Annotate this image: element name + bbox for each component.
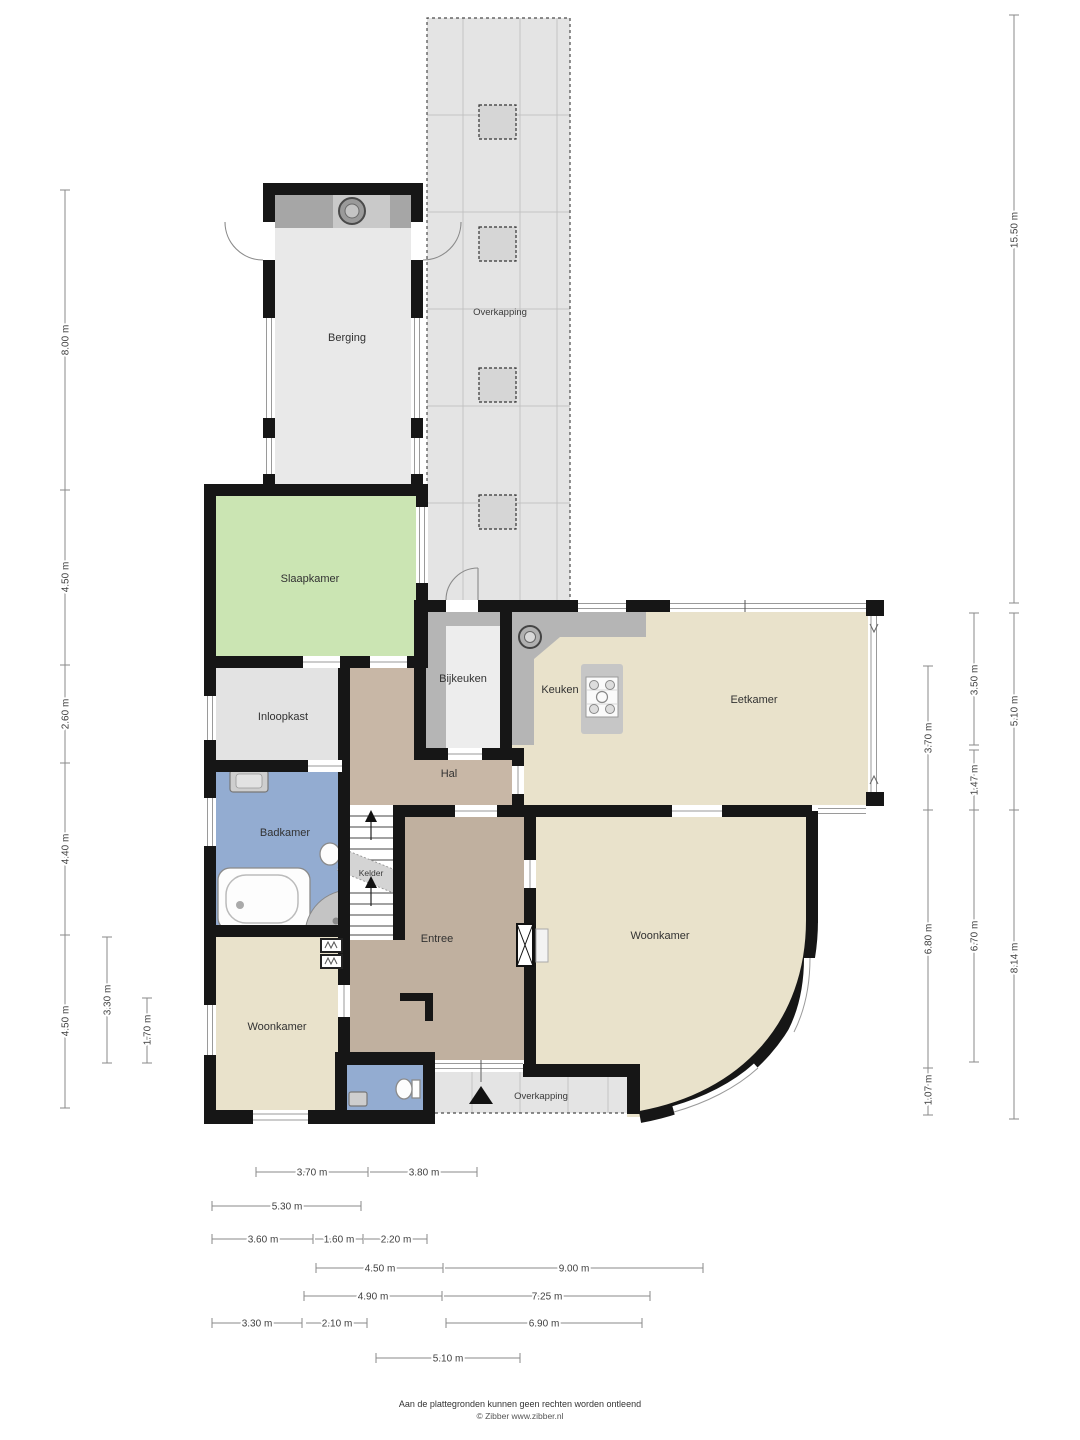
svg-text:5.10 m: 5.10 m	[433, 1354, 464, 1365]
bijkeuken-counter	[446, 612, 500, 626]
dimension: 3.70 m	[256, 1167, 368, 1179]
window	[578, 600, 866, 612]
svg-text:1.07 m: 1.07 m	[924, 1075, 935, 1106]
dimension: 3.80 m	[370, 1167, 477, 1179]
dimension: 8.00 m	[60, 190, 72, 490]
dimension: 4.90 m	[304, 1291, 442, 1303]
dimension: 4.40 m	[60, 763, 72, 935]
window	[204, 696, 216, 740]
dimension: 3.30 m	[212, 1318, 302, 1330]
room-label-bijkeuken: Bijkeuken	[439, 673, 487, 685]
svg-text:15.50 m: 15.50 m	[1010, 212, 1021, 248]
dimension: 5.30 m	[212, 1201, 361, 1213]
footer-credit: © Zibber www.zibber.nl	[476, 1411, 563, 1421]
door-arc-icon	[225, 222, 263, 260]
dimension: 7.25 m	[444, 1291, 650, 1303]
svg-text:8.00 m: 8.00 m	[61, 325, 72, 356]
toilet-icon	[412, 1080, 420, 1098]
svg-text:8.14 m: 8.14 m	[1010, 943, 1021, 974]
svg-text:6.90 m: 6.90 m	[529, 1319, 560, 1330]
dimension: 1.47 m	[969, 750, 981, 810]
room-label-woonkamer: Woonkamer	[630, 930, 689, 942]
footer-disclaimer: Aan de plattegronden kunnen geen rechten…	[399, 1399, 641, 1409]
svg-text:3.30 m: 3.30 m	[103, 985, 114, 1016]
floorplan-page: Overkapping Overkapping	[0, 0, 1080, 1440]
front-door	[435, 1060, 523, 1072]
room-label-entree: Entree	[421, 933, 453, 945]
svg-text:3.60 m: 3.60 m	[248, 1235, 279, 1246]
dimension: 5.10 m	[376, 1353, 520, 1365]
post-icon	[479, 368, 516, 402]
overkapping-top: Overkapping	[427, 18, 570, 601]
dimension: 3.50 m	[969, 613, 981, 745]
post-icon	[479, 495, 516, 529]
window	[204, 798, 216, 846]
dimension: 1.07 m	[923, 1065, 935, 1115]
svg-text:5.10 m: 5.10 m	[1010, 696, 1021, 727]
room-label-eetkamer: Eetkamer	[730, 694, 777, 706]
dimension: 4.50 m	[60, 490, 72, 665]
svg-text:5.30 m: 5.30 m	[272, 1202, 303, 1213]
dimension: 1.70 m	[142, 998, 154, 1063]
window	[416, 507, 428, 583]
svg-text:1.47 m: 1.47 m	[970, 765, 981, 796]
svg-text:1.70 m: 1.70 m	[143, 1015, 154, 1046]
dimension: 3.70 m	[923, 666, 935, 810]
room-keuken-eetkamer	[512, 612, 868, 805]
room-label-overkapping-bottom: Overkapping	[514, 1091, 568, 1102]
dimension: 9.00 m	[445, 1263, 703, 1275]
room-label-keuken: Keuken	[541, 684, 578, 696]
svg-text:7.25 m: 7.25 m	[532, 1292, 563, 1303]
dimension: 8.14 m	[1009, 810, 1021, 1119]
post-icon	[479, 105, 516, 139]
dimension: 6.80 m	[923, 810, 935, 1068]
meter-box-icon	[321, 939, 342, 952]
door-opening	[446, 600, 478, 612]
svg-text:9.00 m: 9.00 m	[559, 1264, 590, 1275]
dimension: 2.10 m	[306, 1318, 367, 1330]
svg-text:3.50 m: 3.50 m	[970, 665, 981, 696]
dimension: 6.70 m	[969, 810, 981, 1062]
meter-box-icon	[321, 955, 342, 968]
dimension: 6.90 m	[446, 1318, 642, 1330]
svg-text:2.60 m: 2.60 m	[61, 699, 72, 730]
svg-text:4.50 m: 4.50 m	[61, 1006, 72, 1037]
dimension: 15.50 m	[1009, 15, 1021, 603]
svg-text:4.50 m: 4.50 m	[365, 1264, 396, 1275]
svg-text:3.80 m: 3.80 m	[409, 1168, 440, 1179]
dimension: 1.60 m	[315, 1234, 363, 1246]
post-icon	[479, 227, 516, 261]
window	[818, 805, 866, 817]
svg-text:2.10 m: 2.10 m	[322, 1319, 353, 1330]
svg-text:1.60 m: 1.60 m	[324, 1235, 355, 1246]
svg-text:4.90 m: 4.90 m	[358, 1292, 389, 1303]
svg-text:3.70 m: 3.70 m	[924, 723, 935, 754]
floorplan-canvas: Overkapping Overkapping	[0, 0, 1080, 1440]
window	[868, 616, 880, 792]
sink-icon	[349, 1092, 367, 1106]
dimension: 4.50 m	[60, 935, 72, 1108]
room-label-overkapping-top: Overkapping	[473, 307, 527, 318]
room-label-hal: Hal	[441, 768, 458, 780]
room-label-slaapkamer: Slaapkamer	[281, 573, 340, 585]
room-label-berging: Berging	[328, 332, 366, 344]
door-opening	[263, 222, 275, 260]
dimension: 4.50 m	[316, 1263, 443, 1275]
svg-text:6.80 m: 6.80 m	[924, 924, 935, 955]
svg-text:2.20 m: 2.20 m	[381, 1235, 412, 1246]
berging-detail	[275, 195, 411, 228]
dimension: 3.30 m	[102, 937, 114, 1063]
door-opening	[411, 222, 423, 260]
room-label-kelder: Kelder	[359, 868, 384, 878]
svg-text:6.70 m: 6.70 m	[970, 921, 981, 952]
dimensions-horizontal: 3.70 m 3.80 m 5.30 m 3.60 m 1.60 m 2.20 …	[212, 1167, 703, 1365]
svg-text:4.40 m: 4.40 m	[61, 834, 72, 865]
dimension: 2.60 m	[60, 665, 72, 763]
dimension: 3.60 m	[212, 1234, 313, 1246]
dimension: 2.20 m	[364, 1234, 427, 1246]
room-label-woonkamer-left: Woonkamer	[247, 1021, 306, 1033]
svg-text:3.30 m: 3.30 m	[242, 1319, 273, 1330]
room-label-badkamer: Badkamer	[260, 827, 310, 839]
room-label-inloopkast: Inloopkast	[258, 711, 308, 723]
dimension: 5.10 m	[1009, 613, 1021, 810]
bathtub-icon	[218, 868, 310, 930]
svg-text:4.50 m: 4.50 m	[61, 562, 72, 593]
svg-text:3.70 m: 3.70 m	[297, 1168, 328, 1179]
